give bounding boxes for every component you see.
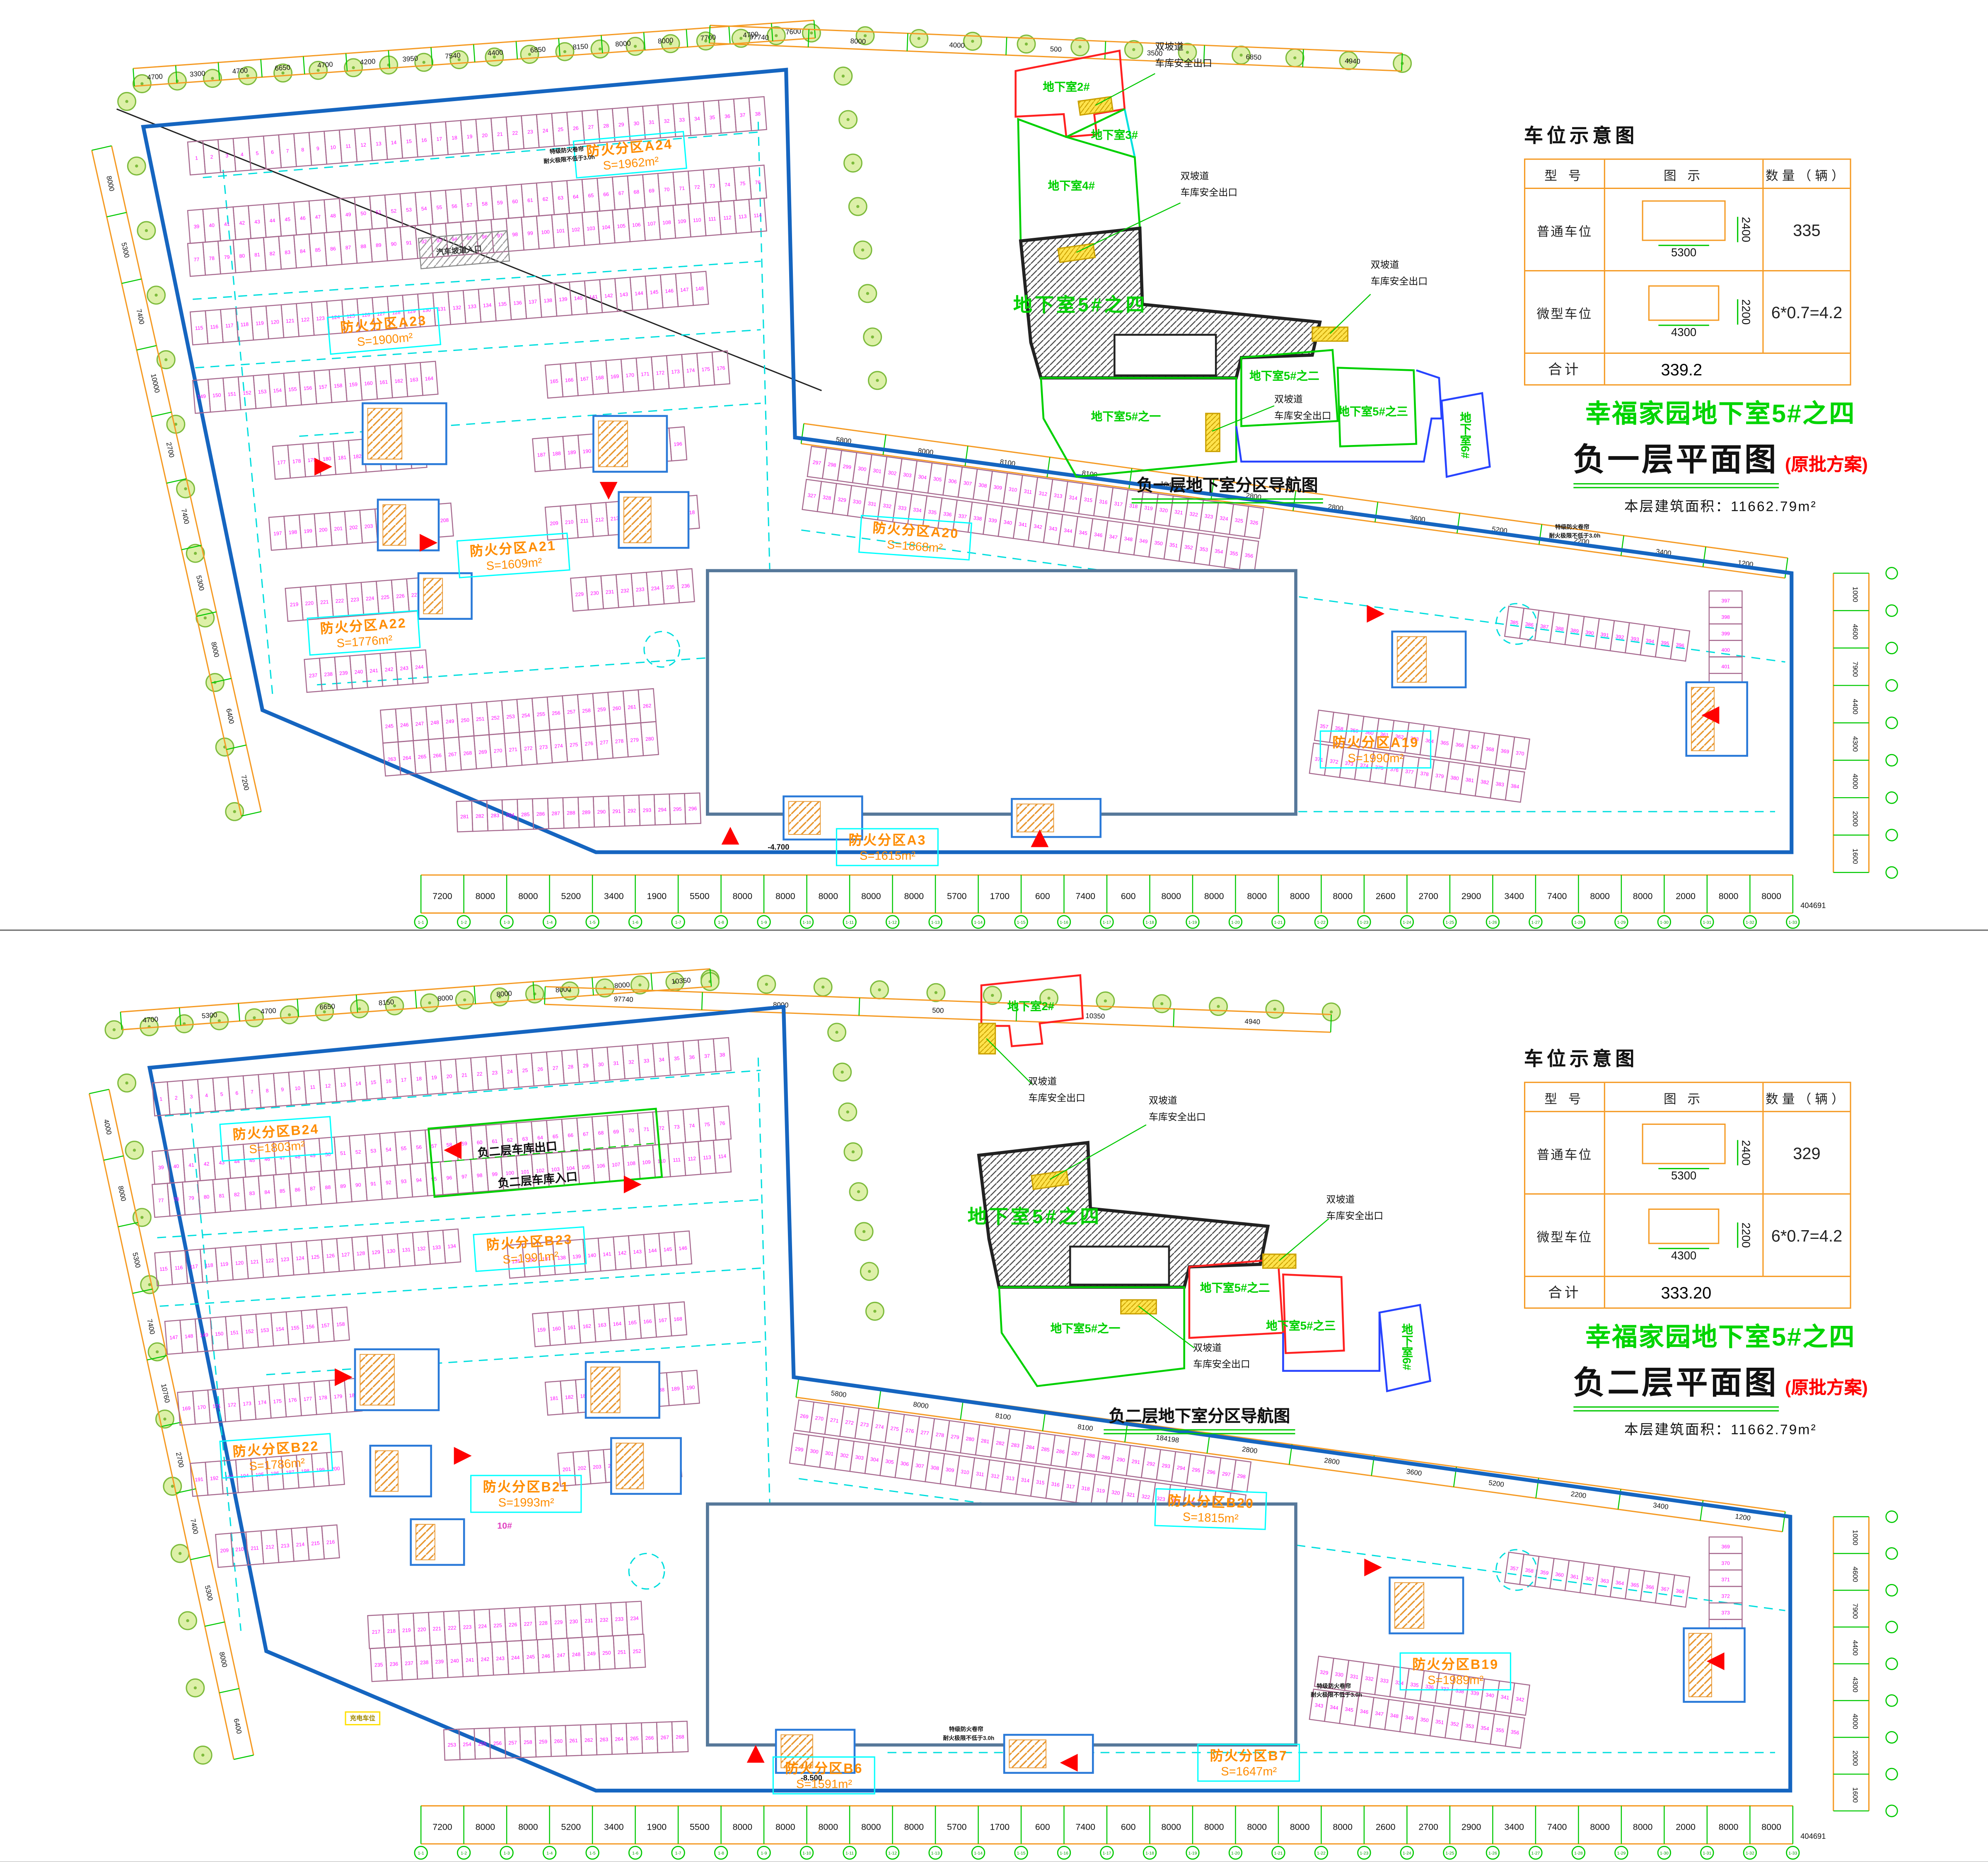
svg-text:263: 263 <box>600 1736 609 1743</box>
svg-text:1-29: 1-29 <box>1617 920 1626 925</box>
svg-text:343: 343 <box>1314 1702 1324 1709</box>
tower-void <box>708 1504 1296 1745</box>
svg-text:247: 247 <box>557 1652 565 1659</box>
svg-text:1-16: 1-16 <box>1060 1851 1068 1856</box>
svg-text:7400: 7400 <box>180 508 191 525</box>
svg-text:267: 267 <box>660 1734 669 1741</box>
svg-text:371: 371 <box>1721 1577 1730 1583</box>
svg-text:235: 235 <box>374 1662 383 1668</box>
nav-label-zone3: 地下室3# <box>1091 126 1138 143</box>
svg-text:370: 370 <box>1515 750 1524 757</box>
svg-text:209: 209 <box>220 1547 229 1554</box>
svg-text:232: 232 <box>600 1617 609 1623</box>
svg-text:165: 165 <box>628 1320 637 1326</box>
svg-text:7900: 7900 <box>1851 1603 1859 1619</box>
svg-text:170: 170 <box>626 372 635 379</box>
svg-text:102: 102 <box>571 227 580 233</box>
svg-text:211: 211 <box>251 1545 259 1552</box>
svg-text:15: 15 <box>370 1079 377 1086</box>
svg-text:286: 286 <box>536 811 545 817</box>
svg-text:8000: 8000 <box>210 641 221 658</box>
row-standard-type: 普通车位 <box>1525 1112 1604 1193</box>
svg-text:319: 319 <box>1096 1487 1105 1494</box>
svg-text:374: 374 <box>1360 762 1369 769</box>
svg-text:304: 304 <box>918 474 927 481</box>
svg-text:238: 238 <box>420 1659 429 1666</box>
svg-text:194: 194 <box>240 1473 249 1479</box>
svg-text:1-33: 1-33 <box>1788 920 1797 925</box>
svg-text:323: 323 <box>1156 1495 1165 1502</box>
svg-text:218: 218 <box>387 1628 396 1634</box>
svg-text:64: 64 <box>573 193 579 200</box>
svg-text:101: 101 <box>521 1169 530 1175</box>
svg-text:187: 187 <box>537 452 546 458</box>
svg-text:181: 181 <box>550 1395 559 1402</box>
svg-text:7200: 7200 <box>432 891 452 901</box>
sheet-basement2: 4700530047006650815080008000800080001035… <box>0 931 1988 1860</box>
stall-width-dim: 5300 <box>1658 1168 1709 1182</box>
svg-text:51: 51 <box>340 1150 346 1156</box>
svg-text:8000: 8000 <box>555 985 571 994</box>
svg-text:35: 35 <box>709 114 715 121</box>
svg-text:366: 366 <box>1645 1584 1655 1591</box>
svg-text:39: 39 <box>158 1164 164 1170</box>
svg-text:152: 152 <box>245 1328 254 1335</box>
svg-text:361: 361 <box>1380 731 1389 738</box>
svg-text:14: 14 <box>391 140 397 146</box>
svg-text:8: 8 <box>266 1088 269 1094</box>
svg-text:285: 285 <box>521 812 530 818</box>
svg-text:62: 62 <box>507 1137 513 1143</box>
col-header-diagram: 图 示 <box>1604 1083 1763 1111</box>
svg-text:243: 243 <box>496 1655 505 1661</box>
svg-text:68: 68 <box>633 189 640 195</box>
svg-text:264: 264 <box>403 755 412 762</box>
svg-text:79: 79 <box>224 254 230 260</box>
svg-text:227: 227 <box>524 1621 532 1627</box>
svg-text:306: 306 <box>900 1461 909 1468</box>
svg-text:266: 266 <box>433 752 442 759</box>
svg-text:1-6: 1-6 <box>632 1851 638 1856</box>
svg-text:327: 327 <box>807 492 816 499</box>
svg-text:234: 234 <box>630 1615 639 1621</box>
svg-text:13: 13 <box>340 1082 346 1088</box>
svg-text:3600: 3600 <box>1406 1468 1423 1478</box>
stall-depth-dim: 2400 <box>1737 217 1752 242</box>
svg-text:240: 240 <box>450 1658 459 1664</box>
svg-text:8000: 8000 <box>775 1822 795 1832</box>
svg-text:287: 287 <box>551 810 560 817</box>
svg-text:253: 253 <box>447 1742 456 1748</box>
svg-text:1-2: 1-2 <box>461 1851 467 1856</box>
svg-text:2600: 2600 <box>1376 1822 1396 1832</box>
svg-text:27: 27 <box>552 1065 558 1071</box>
svg-text:273: 273 <box>539 744 548 751</box>
row-standard-qty: 335 <box>1762 189 1850 270</box>
svg-text:8000: 8000 <box>437 994 453 1003</box>
plan-title: 负二层平面图 <box>1573 1358 1779 1412</box>
garage-exit-callout: 双坡道车库安全出口 <box>1326 1192 1383 1225</box>
svg-text:72: 72 <box>694 184 700 190</box>
svg-text:224: 224 <box>365 595 374 602</box>
plan-title: 负一层平面图 <box>1573 435 1779 488</box>
svg-text:1-4: 1-4 <box>546 1851 553 1856</box>
svg-text:83: 83 <box>249 1190 255 1197</box>
svg-text:296: 296 <box>688 805 697 812</box>
svg-text:365: 365 <box>1630 1581 1639 1589</box>
svg-text:4000: 4000 <box>949 41 965 49</box>
svg-text:325: 325 <box>1234 517 1244 524</box>
svg-text:201: 201 <box>562 1466 571 1473</box>
svg-text:1-13: 1-13 <box>931 920 940 925</box>
svg-text:1-27: 1-27 <box>1531 920 1540 925</box>
svg-text:149: 149 <box>200 1332 209 1339</box>
svg-text:52: 52 <box>355 1149 361 1155</box>
svg-text:4000: 4000 <box>1851 1714 1859 1729</box>
svg-text:7900: 7900 <box>1851 661 1859 677</box>
svg-text:130: 130 <box>386 1248 396 1255</box>
svg-text:250: 250 <box>602 1650 611 1656</box>
svg-text:361: 361 <box>1570 1573 1579 1580</box>
svg-text:346: 346 <box>1094 532 1103 539</box>
svg-text:125: 125 <box>346 313 355 319</box>
svg-text:332: 332 <box>1365 1675 1374 1682</box>
svg-text:69: 69 <box>613 1129 619 1135</box>
stall-depth-dim: 2200 <box>1737 1222 1752 1248</box>
svg-text:245: 245 <box>385 723 394 730</box>
svg-text:364: 364 <box>1615 1579 1624 1586</box>
svg-text:251: 251 <box>476 716 485 723</box>
svg-text:312: 312 <box>990 1473 1000 1480</box>
svg-text:8000: 8000 <box>218 1651 229 1668</box>
svg-text:248: 248 <box>572 1652 580 1658</box>
svg-text:269: 269 <box>478 749 488 755</box>
svg-text:139: 139 <box>572 1253 581 1260</box>
svg-text:311: 311 <box>976 1471 984 1478</box>
svg-text:155: 155 <box>291 1325 300 1331</box>
svg-text:100: 100 <box>541 229 550 235</box>
svg-text:251: 251 <box>617 1649 626 1655</box>
svg-text:350: 350 <box>1154 540 1163 547</box>
svg-text:126: 126 <box>362 312 371 318</box>
svg-text:600: 600 <box>1035 891 1050 901</box>
svg-text:1-18: 1-18 <box>1145 920 1154 925</box>
svg-text:38: 38 <box>755 111 761 117</box>
svg-text:8100: 8100 <box>995 1412 1012 1422</box>
svg-text:358: 358 <box>1525 1567 1534 1574</box>
svg-text:1000: 1000 <box>1851 587 1859 602</box>
svg-text:106: 106 <box>597 1163 606 1169</box>
svg-text:336: 336 <box>1425 1683 1434 1690</box>
nav-label-zone2: 地下室2# <box>1007 997 1054 1014</box>
svg-text:134: 134 <box>483 302 492 309</box>
svg-text:171: 171 <box>212 1403 221 1410</box>
svg-text:8000: 8000 <box>1719 1822 1739 1832</box>
svg-text:138: 138 <box>543 297 553 304</box>
svg-text:600: 600 <box>1035 1822 1050 1832</box>
svg-text:150: 150 <box>213 392 222 399</box>
svg-text:3400: 3400 <box>604 891 624 901</box>
svg-text:2000: 2000 <box>1676 891 1696 901</box>
svg-text:178: 178 <box>292 458 301 465</box>
stall-width-dim: 5300 <box>1658 245 1709 259</box>
svg-text:59: 59 <box>497 200 503 206</box>
svg-text:280: 280 <box>645 736 655 742</box>
svg-text:39: 39 <box>193 223 200 230</box>
svg-text:309: 309 <box>945 1467 954 1474</box>
svg-text:260: 260 <box>612 705 621 712</box>
svg-text:315: 315 <box>1084 496 1093 503</box>
svg-text:103: 103 <box>587 225 596 232</box>
svg-text:12: 12 <box>325 1083 331 1089</box>
svg-text:223: 223 <box>350 597 360 603</box>
svg-text:333: 333 <box>898 505 907 512</box>
svg-text:70: 70 <box>664 186 670 193</box>
svg-text:8: 8 <box>301 147 304 153</box>
svg-text:276: 276 <box>585 740 594 747</box>
svg-text:277: 277 <box>920 1429 929 1436</box>
svg-text:388: 388 <box>1555 625 1564 632</box>
svg-text:363: 363 <box>1600 1577 1609 1584</box>
svg-text:308: 308 <box>930 1465 940 1472</box>
svg-text:5800: 5800 <box>831 1389 847 1399</box>
svg-text:62: 62 <box>542 196 548 202</box>
svg-text:392: 392 <box>1615 634 1624 641</box>
svg-text:148: 148 <box>695 285 704 292</box>
row-mini-type: 微型车位 <box>1525 1195 1604 1276</box>
svg-text:144: 144 <box>648 1248 657 1254</box>
svg-text:342: 342 <box>1033 523 1042 530</box>
svg-text:131: 131 <box>437 306 447 312</box>
svg-text:255: 255 <box>478 1741 487 1747</box>
svg-text:1-25: 1-25 <box>1446 920 1454 925</box>
nav-label-zone5-1: 地下室5#之一 <box>1091 408 1161 424</box>
svg-text:184198: 184198 <box>1155 1434 1179 1444</box>
svg-text:10000: 10000 <box>149 373 161 394</box>
svg-text:333: 333 <box>1380 1677 1389 1684</box>
svg-text:335: 335 <box>928 509 937 516</box>
svg-text:15: 15 <box>406 138 412 145</box>
svg-text:356: 356 <box>1244 552 1254 559</box>
svg-text:84: 84 <box>300 248 306 254</box>
svg-text:1700: 1700 <box>990 891 1010 901</box>
svg-text:399: 399 <box>1721 631 1730 636</box>
svg-text:172: 172 <box>656 370 665 376</box>
svg-text:31: 31 <box>613 1060 619 1066</box>
svg-text:326: 326 <box>1249 519 1259 526</box>
svg-text:291: 291 <box>612 808 621 815</box>
svg-text:1-22: 1-22 <box>1317 1851 1326 1856</box>
svg-text:293: 293 <box>643 807 652 813</box>
svg-text:249: 249 <box>587 1651 596 1657</box>
svg-text:331: 331 <box>867 501 877 508</box>
svg-text:173: 173 <box>243 1400 252 1407</box>
garage-exit-callout: 双坡道车库安全出口 <box>1028 1074 1085 1107</box>
svg-text:370: 370 <box>1721 1560 1730 1566</box>
key-plan-caption: 负一层地下室分区导航图 <box>1132 472 1323 504</box>
svg-text:277: 277 <box>600 739 609 746</box>
svg-text:97740: 97740 <box>614 995 633 1004</box>
svg-text:272: 272 <box>845 1419 854 1426</box>
svg-text:320: 320 <box>1159 507 1168 514</box>
svg-text:4000: 4000 <box>1851 774 1859 789</box>
svg-text:4300: 4300 <box>1851 736 1859 752</box>
svg-text:182: 182 <box>353 453 362 460</box>
svg-text:1-12: 1-12 <box>888 1851 897 1856</box>
svg-text:111: 111 <box>708 216 717 222</box>
svg-text:169: 169 <box>610 373 619 380</box>
svg-text:8000: 8000 <box>105 175 116 192</box>
nav-label-zone5-4: 地下室5#之四 <box>968 1203 1101 1229</box>
svg-text:8000: 8000 <box>1761 891 1781 901</box>
svg-text:358: 358 <box>1335 725 1344 732</box>
svg-text:50: 50 <box>325 1151 331 1158</box>
svg-text:359: 359 <box>1350 727 1359 734</box>
svg-text:118: 118 <box>205 1262 213 1269</box>
svg-text:111: 111 <box>673 1157 681 1163</box>
svg-text:189: 189 <box>567 449 576 456</box>
svg-text:105: 105 <box>581 1164 590 1170</box>
svg-text:191: 191 <box>195 1476 204 1483</box>
svg-text:158: 158 <box>334 382 343 389</box>
svg-text:23: 23 <box>492 1070 498 1076</box>
stall-diagram: 4300 2200 <box>1604 1195 1763 1276</box>
svg-text:28: 28 <box>603 123 609 129</box>
svg-text:40: 40 <box>173 1163 179 1170</box>
stall-depth-dim: 2200 <box>1737 299 1752 324</box>
svg-text:371: 371 <box>1314 756 1324 763</box>
svg-text:19: 19 <box>431 1074 437 1081</box>
svg-text:42: 42 <box>203 1161 210 1167</box>
svg-text:364: 364 <box>1425 738 1434 745</box>
svg-text:54: 54 <box>421 206 427 212</box>
svg-text:293: 293 <box>1162 1463 1171 1470</box>
svg-text:287: 287 <box>1071 1450 1080 1457</box>
svg-text:8150: 8150 <box>572 42 589 51</box>
svg-text:88: 88 <box>325 1184 331 1190</box>
svg-text:81: 81 <box>219 1192 225 1199</box>
svg-text:260: 260 <box>554 1738 563 1744</box>
svg-text:310: 310 <box>960 1469 969 1476</box>
garage-exit-callout: 双坡道车库安全出口 <box>1274 392 1331 425</box>
svg-text:231: 231 <box>605 589 614 595</box>
svg-text:8000: 8000 <box>861 1822 881 1832</box>
svg-text:117: 117 <box>225 322 234 329</box>
svg-text:195: 195 <box>255 1472 264 1478</box>
svg-text:4: 4 <box>240 152 244 158</box>
svg-text:240: 240 <box>354 669 363 675</box>
svg-text:203: 203 <box>364 523 373 530</box>
svg-text:380: 380 <box>1450 775 1459 782</box>
svg-text:229: 229 <box>575 591 584 598</box>
svg-text:57: 57 <box>466 202 473 208</box>
svg-text:107: 107 <box>647 220 656 227</box>
svg-text:112: 112 <box>723 215 732 221</box>
svg-text:1900: 1900 <box>647 891 667 901</box>
svg-text:63: 63 <box>558 195 564 201</box>
svg-text:85: 85 <box>315 247 321 253</box>
svg-text:145: 145 <box>650 289 659 296</box>
svg-text:131: 131 <box>402 1247 411 1253</box>
svg-text:279: 279 <box>950 1434 959 1441</box>
project-title: 幸福家园地下室5#之四 <box>1537 1316 1905 1353</box>
svg-text:149: 149 <box>197 393 206 400</box>
svg-text:294: 294 <box>1176 1465 1186 1472</box>
svg-text:367: 367 <box>1660 1586 1669 1593</box>
svg-text:47: 47 <box>279 1155 285 1161</box>
ramp-icon <box>1263 1254 1296 1268</box>
svg-text:346: 346 <box>1360 1708 1369 1715</box>
col-header-qty: 数量（辆） <box>1762 160 1850 188</box>
svg-text:389: 389 <box>1570 627 1579 634</box>
svg-text:216: 216 <box>326 1539 335 1545</box>
tower-void <box>708 571 1296 814</box>
svg-text:7540: 7540 <box>445 51 461 60</box>
svg-text:1600: 1600 <box>1851 1787 1859 1802</box>
row-mini-qty: 6*0.7=4.2 <box>1762 1195 1850 1276</box>
svg-text:129: 129 <box>407 308 416 315</box>
svg-text:8000: 8000 <box>1290 1822 1310 1832</box>
svg-text:53: 53 <box>406 207 412 213</box>
svg-text:197: 197 <box>286 1469 295 1476</box>
svg-text:265: 265 <box>630 1736 639 1742</box>
svg-text:257: 257 <box>508 1740 517 1746</box>
svg-text:1-16: 1-16 <box>1060 920 1068 925</box>
svg-text:147: 147 <box>680 287 689 293</box>
garage-exit-callout: 双坡道车库安全出口 <box>1155 40 1212 72</box>
svg-text:213: 213 <box>281 1543 290 1549</box>
svg-text:283: 283 <box>1011 1442 1020 1449</box>
svg-text:94: 94 <box>416 1177 422 1183</box>
svg-text:3400: 3400 <box>604 1822 624 1832</box>
svg-text:1-3: 1-3 <box>504 920 510 925</box>
svg-text:291: 291 <box>1131 1458 1140 1465</box>
svg-text:25: 25 <box>558 126 564 133</box>
svg-text:292: 292 <box>1146 1461 1155 1468</box>
svg-text:7400: 7400 <box>1075 891 1095 901</box>
svg-text:28: 28 <box>568 1064 574 1070</box>
svg-text:7200: 7200 <box>432 1822 452 1832</box>
svg-text:7400: 7400 <box>1547 891 1567 901</box>
svg-text:220: 220 <box>305 600 314 607</box>
svg-text:1-23: 1-23 <box>1360 920 1369 925</box>
svg-text:5200: 5200 <box>561 891 581 901</box>
svg-text:393: 393 <box>1630 636 1639 643</box>
svg-text:1-9: 1-9 <box>761 920 767 925</box>
svg-text:164: 164 <box>613 1320 622 1327</box>
svg-text:97: 97 <box>461 1173 468 1180</box>
nav-label-zone5-4: 地下室5#之四 <box>1013 291 1147 317</box>
svg-text:20: 20 <box>446 1073 452 1079</box>
svg-text:404691: 404691 <box>1800 901 1826 909</box>
svg-text:300: 300 <box>809 1448 819 1455</box>
svg-text:198: 198 <box>288 529 297 536</box>
svg-text:259: 259 <box>597 706 606 713</box>
svg-text:197: 197 <box>273 530 283 537</box>
svg-text:214: 214 <box>296 1541 305 1548</box>
svg-text:133: 133 <box>432 1244 441 1251</box>
svg-text:44: 44 <box>234 1158 240 1165</box>
svg-text:166: 166 <box>565 377 574 384</box>
svg-text:46: 46 <box>300 215 306 221</box>
svg-text:375: 375 <box>1375 764 1384 771</box>
svg-text:329: 329 <box>1319 1669 1329 1676</box>
svg-text:145: 145 <box>663 1246 672 1253</box>
svg-text:1-11: 1-11 <box>845 920 854 925</box>
svg-text:119: 119 <box>256 320 264 326</box>
svg-text:114: 114 <box>718 1153 727 1160</box>
svg-text:286: 286 <box>1056 1448 1065 1455</box>
